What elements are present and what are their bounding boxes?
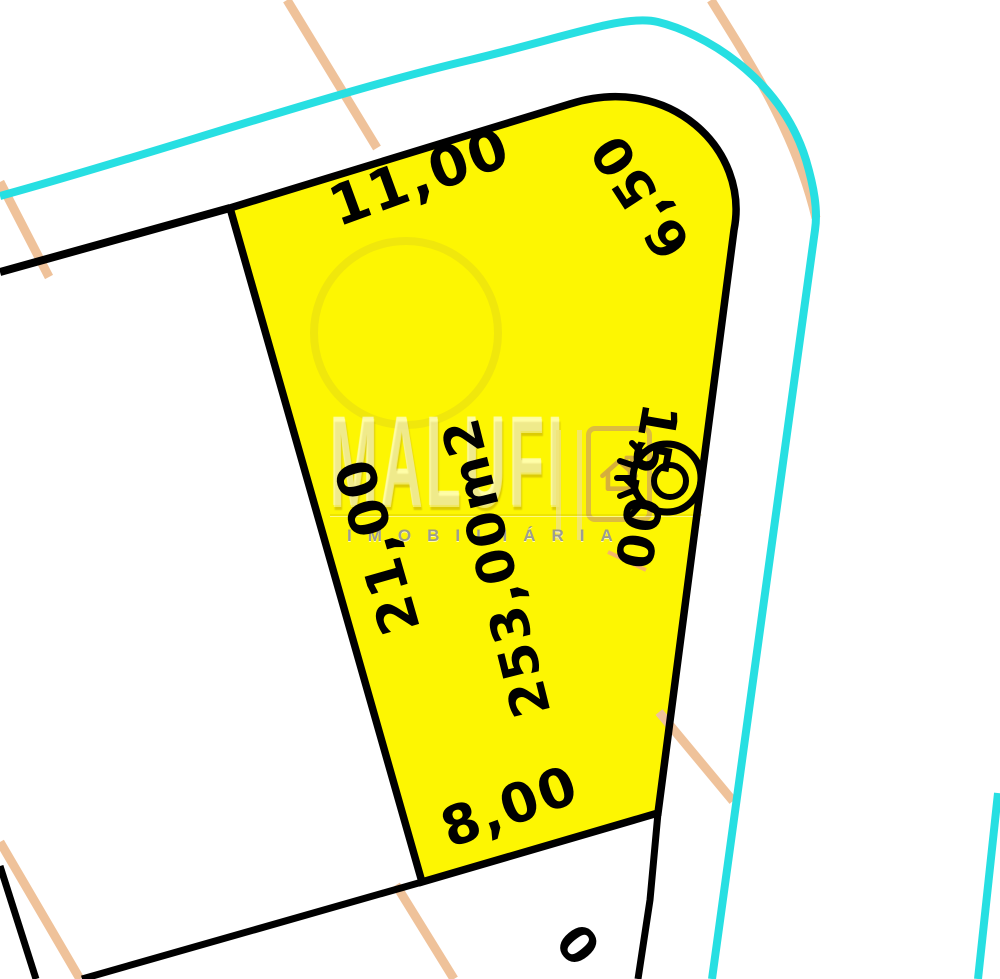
adjacent-lot-partial-label: 0	[547, 916, 609, 976]
guide-line-bottom-right	[659, 712, 733, 801]
guide-line-top-right	[711, 0, 816, 218]
block-bottom-boundary	[82, 882, 422, 979]
guide-line-bottom-left	[0, 842, 80, 979]
plot-map: MALUFI IMOBILIÁRIA	[0, 0, 1000, 979]
block-top-boundary	[0, 208, 230, 272]
adjacent-lot-right-boundary	[638, 813, 658, 979]
dimension-label-corner: 6,50	[582, 125, 700, 268]
road-edge-far-right	[978, 793, 998, 979]
corner-lot-boundary	[0, 866, 36, 979]
guide-line-top-left	[0, 182, 49, 277]
dimension-label-top: 11,00	[322, 120, 517, 237]
watermark-logo-bars	[556, 430, 582, 540]
guide-line-bottom-center	[396, 885, 454, 979]
guide-line-top-center	[287, 0, 377, 148]
dimension-label-bottom: 8,00	[434, 757, 585, 856]
